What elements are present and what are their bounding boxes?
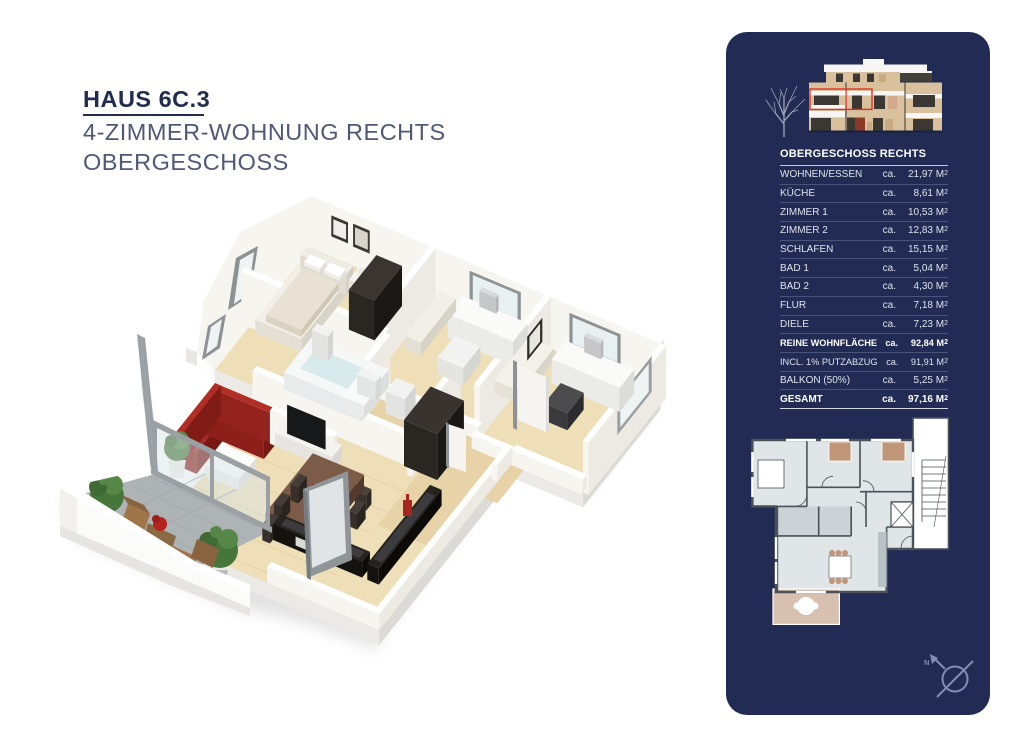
svg-text:N: N [924,658,929,667]
